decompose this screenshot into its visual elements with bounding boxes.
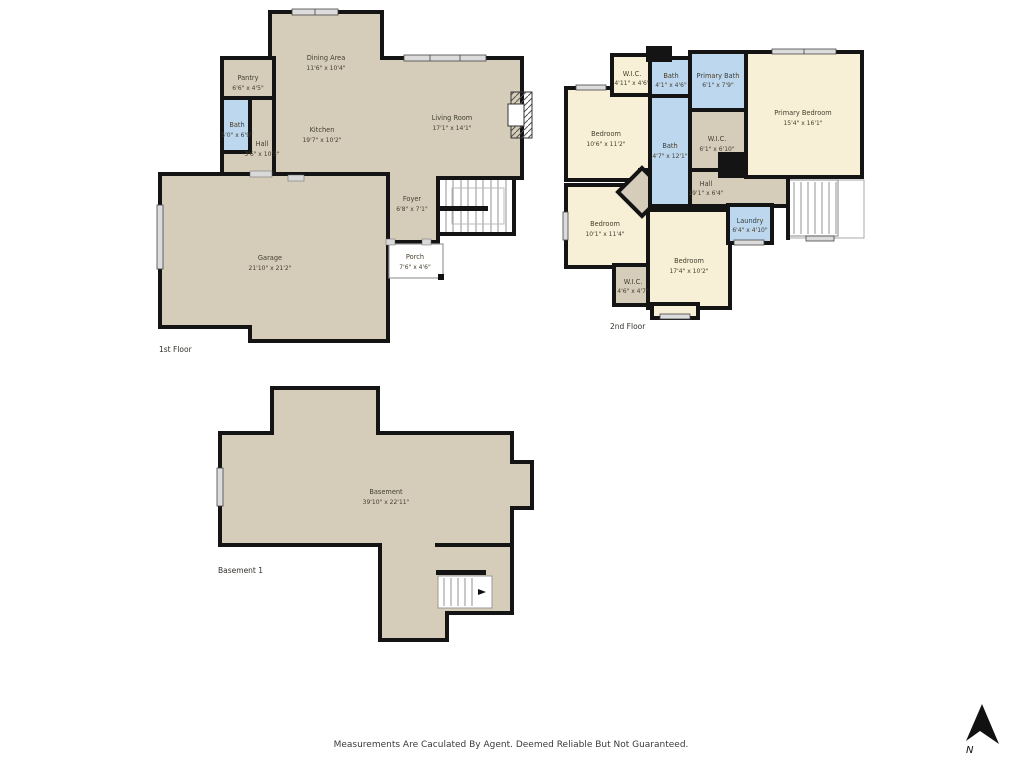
room-label: W.I.C.	[624, 278, 643, 286]
window	[404, 55, 486, 61]
room-dims: 11'6" x 10'4"	[306, 65, 345, 72]
room-dims: 19'1" x 6'4"	[688, 190, 724, 197]
floor-label-2f: 2nd Floor	[610, 322, 646, 331]
room-label: Bath	[662, 142, 677, 150]
room-dims: 5'0" x 6'9"	[221, 132, 253, 139]
room-dims: 6'1" x 6'10"	[699, 146, 735, 153]
floor-label-basement: Basement 1	[218, 566, 263, 575]
door-threshold	[386, 239, 395, 245]
room-label: Garage	[258, 254, 282, 262]
room-label: Primary Bath	[697, 72, 740, 80]
stairs-basement	[436, 570, 492, 608]
porch-post	[438, 274, 444, 280]
window	[217, 468, 223, 506]
window	[157, 205, 163, 269]
room-label: Bath	[663, 72, 678, 80]
first-floor-plan: Dining Area 11'6" x 10'4" Pantry 6'6" x …	[157, 9, 532, 354]
room-dims: 4'1" x 4'6"	[655, 82, 687, 89]
north-arrow-icon: N	[966, 704, 999, 756]
room-dims: 19'7" x 10'2"	[302, 137, 341, 144]
room-dims: 6'6" x 4'5"	[232, 85, 264, 92]
room-label: Pantry	[237, 74, 258, 82]
door-threshold	[288, 175, 304, 181]
room-label: Hall	[700, 180, 713, 188]
room-label: Primary Bedroom	[774, 109, 831, 117]
wall-block	[718, 152, 748, 178]
stairs-2f	[788, 178, 864, 240]
room-dims: 39'10" x 22'11"	[363, 499, 410, 506]
room-dims: 4'7" x 12'1"	[652, 153, 688, 160]
room-label: Kitchen	[310, 126, 335, 134]
room-dims: 6'4" x 4'10"	[732, 227, 768, 234]
disclaimer-text: Measurements Are Caculated By Agent. Dee…	[334, 740, 689, 750]
room-dims: 6'8" x 7'1"	[396, 206, 428, 213]
room-label: Hall	[256, 140, 269, 148]
floorplan-page: Dining Area 11'6" x 10'4" Pantry 6'6" x …	[0, 0, 1024, 768]
room-dims: 15'4" x 16'1"	[783, 120, 822, 127]
room-dims: 21'10" x 21'2"	[249, 265, 292, 272]
room-dims: 3'6" x 10'3"	[244, 151, 280, 158]
north-label: N	[966, 745, 974, 756]
door-threshold	[422, 239, 431, 245]
room-dims: 6'1" x 7'9"	[702, 82, 734, 89]
window	[563, 212, 568, 240]
room-label: Laundry	[737, 217, 764, 225]
room-label: Dining Area	[307, 54, 346, 62]
room-dims: 4'11" x 4'6"	[614, 80, 650, 87]
basement-plan: Basement 39'10" x 22'11" Basement 1	[217, 388, 532, 640]
room-label: W.I.C.	[623, 70, 642, 78]
window	[734, 240, 764, 245]
second-floor-plan: W.I.C. 4'11" x 4'6" Bath 4'1" x 4'6" Pri…	[563, 46, 864, 331]
room-bath-mid	[650, 96, 690, 206]
room-label: Foyer	[403, 195, 422, 203]
room-dims: 10'1" x 11'4"	[585, 231, 624, 238]
room-dims: 7'6" x 4'6"	[399, 264, 431, 271]
fireplace	[508, 92, 532, 138]
stairs-1f	[438, 178, 514, 234]
room-label: Bedroom	[591, 130, 621, 138]
room-porch	[389, 244, 444, 280]
floorplan-canvas: Dining Area 11'6" x 10'4" Pantry 6'6" x …	[0, 0, 1024, 768]
room-dims: 4'6" x 4'7"	[617, 288, 649, 295]
room-dims: 10'6" x 11'2"	[586, 141, 625, 148]
window	[660, 314, 690, 319]
room-dims: 17'1" x 14'1"	[432, 125, 471, 132]
room-label: Living Room	[432, 114, 472, 122]
floor-label-1f: 1st Floor	[159, 345, 193, 354]
window	[806, 236, 834, 241]
window	[576, 85, 606, 90]
room-label: Bedroom	[674, 257, 704, 265]
room-label: Basement	[369, 488, 403, 496]
room-label: W.I.C.	[708, 135, 727, 143]
room-label: Bedroom	[590, 220, 620, 228]
room-label: Bath	[229, 121, 244, 129]
garage-door	[250, 171, 272, 177]
room-dims: 17'4" x 10'2"	[669, 268, 708, 275]
wall-block	[646, 46, 672, 62]
room-label: Porch	[406, 253, 424, 261]
